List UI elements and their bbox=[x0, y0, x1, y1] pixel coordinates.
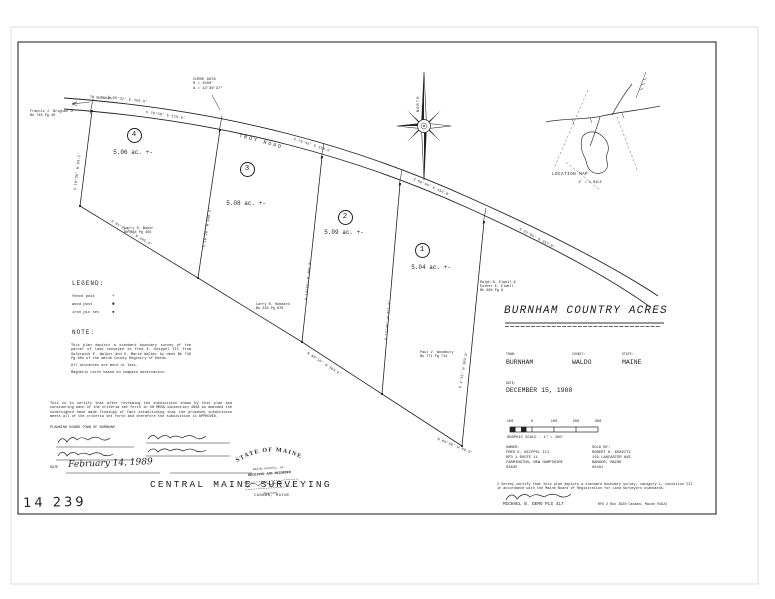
lot4-lot3-division bbox=[198, 130, 220, 278]
sheet-number: 14 239 bbox=[23, 495, 87, 512]
wood-post-symbol: ■ bbox=[112, 303, 115, 307]
stamp-received-line: RECEIVED AND RECORDED bbox=[248, 471, 291, 478]
title-underline bbox=[505, 323, 664, 327]
surveyor-signature bbox=[506, 494, 571, 500]
scale-tick-100: 100 bbox=[546, 420, 562, 424]
abutter-brignan: Francis J. Brignan Jr. Bk 746 Pg 40 bbox=[30, 110, 76, 118]
scale-tick-100-left: 100 bbox=[502, 420, 518, 424]
scale-tick-300: 300 bbox=[590, 420, 606, 424]
planning-board-label: PLANNING BOARD TOWN OF BURNHAM bbox=[50, 426, 115, 430]
abutter-elwell: Ralph N. Elwell & Esther E. Elwell Bk 66… bbox=[480, 281, 516, 294]
stamp-arc-text: STATE OF MAINE bbox=[235, 445, 304, 465]
signature-2 bbox=[148, 435, 206, 439]
note-magnetic-north: Magnetic north based on compass observat… bbox=[71, 371, 166, 375]
plat-title: BURNHAM COUNTRY ACRES bbox=[504, 305, 668, 318]
graphic-scale-bar bbox=[510, 427, 598, 432]
abutter-hubbard: Larry R. Hubbard Bk 318 Pg 878 bbox=[256, 303, 290, 311]
location-map-dashed-2 bbox=[617, 117, 638, 172]
lot-3-number-text: 3 bbox=[245, 165, 250, 173]
scale-tick-0: 0 bbox=[524, 420, 540, 424]
road-upper-line bbox=[64, 98, 658, 296]
state-value: MAINE bbox=[622, 359, 642, 367]
stamp-county-line: Waldo County, ss. bbox=[253, 465, 286, 471]
lot-1-acreage: 5.04 ac. +- bbox=[406, 264, 456, 271]
curve-data-callout: CURVE DATA R = 1500' Δ = 13°30'37" bbox=[193, 78, 223, 91]
signature-3 bbox=[58, 452, 113, 456]
location-map-dashed-1 bbox=[554, 90, 588, 168]
legend-label: LEGEND: bbox=[72, 280, 104, 287]
troy-road-lines bbox=[64, 98, 658, 307]
note-distances: All distances are more or less. bbox=[71, 364, 138, 368]
county-value: WALDO bbox=[572, 359, 592, 367]
plat-sheet: STATE OF MAINE Waldo County, ss. RECEIVE… bbox=[0, 0, 775, 599]
date-value: DECEMBER 15, 1988 bbox=[506, 387, 572, 395]
surveyor-name: MICHAEL N. DEMO PLS 417 bbox=[503, 502, 564, 507]
lot-4-acreage: 5.06 ac. +- bbox=[108, 149, 158, 156]
fence-post-symbol: + bbox=[112, 295, 115, 299]
legend-item-wood-post: wood post ■ bbox=[72, 303, 115, 307]
compass-rose bbox=[397, 72, 451, 180]
lot-3-number: 3 bbox=[240, 162, 255, 177]
date-label: DATE: bbox=[506, 382, 516, 386]
firm-location: CANAAN, MAINE bbox=[254, 494, 290, 498]
scale-caption: GRAPHIC SCALE - 1" = 100' bbox=[507, 436, 564, 441]
lot-4-number-text: 4 bbox=[132, 131, 137, 139]
lot-2-number-text: 2 bbox=[343, 213, 348, 221]
location-map-road-main bbox=[546, 106, 660, 122]
svg-text:STATE OF MAINE: STATE OF MAINE bbox=[235, 445, 304, 465]
approval-date-label: DATE bbox=[50, 466, 58, 470]
location-map-road-branch bbox=[612, 84, 632, 115]
lot-1-number-text: 1 bbox=[420, 246, 425, 254]
legend-item-fence-post: fence post + bbox=[72, 295, 115, 299]
lot-1-number: 1 bbox=[415, 243, 430, 258]
lot-2-acreage: 5.09 ac. +- bbox=[319, 229, 369, 236]
town-value: BURNHAM bbox=[506, 359, 533, 367]
abutter-woodbury: Paul V. Woodbury Bk 771 Pg 714 bbox=[420, 351, 454, 359]
to-burnham-arrow bbox=[72, 102, 90, 106]
scale-tick-200: 200 bbox=[568, 420, 584, 424]
lot-4-number: 4 bbox=[127, 128, 142, 143]
lot-2-number: 2 bbox=[338, 210, 353, 225]
surveyor-certification: I hereby certify that this plan depicts … bbox=[497, 483, 697, 491]
lot3-lot2-division bbox=[302, 157, 322, 342]
approval-text: This is to certify that after reviewing … bbox=[50, 402, 232, 419]
location-map-boundary-blob bbox=[581, 132, 608, 174]
lot-3-acreage: 5.08 ac. +- bbox=[221, 200, 271, 207]
firm-name: CENTRAL MAINE SURVEYING bbox=[150, 479, 332, 490]
road-lower-line bbox=[64, 109, 650, 307]
location-map-label: LOCATION MAP bbox=[552, 173, 588, 178]
signature-4 bbox=[148, 449, 206, 452]
surveyor-address: RFD 2 Box 3930 Canaan, Maine 04924 bbox=[598, 503, 667, 507]
location-map-north-arrow bbox=[636, 72, 647, 98]
owner-block: OWNER: FRED E. KEIPPEL III RFD 1 ROUTE 1… bbox=[506, 446, 563, 471]
plat-border bbox=[18, 42, 716, 514]
curve-data-leader bbox=[212, 95, 220, 110]
note-body: This plan depicts a standard boundary su… bbox=[71, 344, 191, 361]
legend-iron-pin-label: iron pin set bbox=[72, 311, 106, 315]
compass-center-dot bbox=[423, 125, 425, 127]
signature-1 bbox=[58, 437, 110, 443]
county-label: COUNTY: bbox=[572, 353, 585, 357]
note-label: NOTE: bbox=[72, 329, 95, 336]
sold-by-block: SOLD BY: ROBERT H. KRAVITZ 119 LANCASTER… bbox=[592, 446, 633, 471]
iron-pin-symbol: ● bbox=[112, 311, 115, 315]
lot2-lot1-division bbox=[382, 184, 400, 394]
legend-fence-post-label: fence post bbox=[72, 295, 106, 299]
east-boundary bbox=[462, 222, 484, 446]
town-label: TOWN: bbox=[506, 353, 516, 357]
state-label: STATE: bbox=[622, 353, 633, 357]
location-map-scale: 1" = 1 MILE bbox=[578, 181, 602, 185]
legend-wood-post-label: wood post bbox=[72, 303, 106, 307]
compass-north-label: NORTH bbox=[417, 96, 422, 112]
legend-item-iron-pin: iron pin set ● bbox=[72, 311, 115, 315]
